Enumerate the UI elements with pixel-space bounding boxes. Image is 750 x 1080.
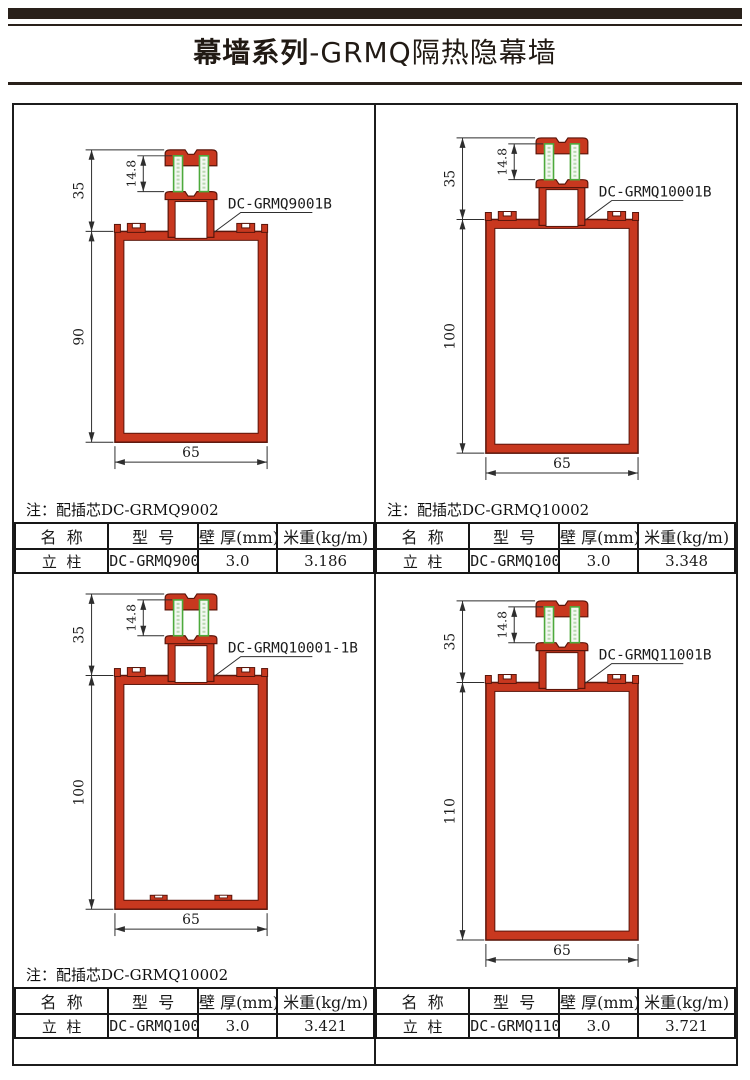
profile-drawing-dc-grmq11001: 3511014.865DC-GRMQ11001B	[375, 570, 736, 965]
col-meter-weight: 米重(kg/m)	[638, 523, 735, 549]
col-model: 型 号	[108, 988, 198, 1014]
col-meter-weight: 米重(kg/m)	[277, 523, 374, 549]
ear-notch-right	[613, 212, 621, 216]
profile-drawing-dc-grmq9001: 359014.865DC-GRMQ9001B	[14, 105, 375, 500]
dim-body-height: 100	[443, 323, 459, 350]
thermal-strip	[570, 607, 579, 643]
ear-notch-left	[132, 668, 140, 672]
ear-notch-right	[242, 668, 250, 672]
top-black-bar	[8, 8, 742, 19]
profile-model-label: DC-GRMQ9001B	[228, 197, 332, 213]
thermal-strip	[199, 156, 208, 192]
cell-name: 立 柱	[15, 1014, 108, 1038]
thermal-lower-piece	[536, 180, 588, 188]
cell-wall-thickness: 3.0	[198, 1014, 277, 1038]
ear-lip-right	[633, 676, 639, 684]
dim-arrow	[89, 594, 95, 604]
title-underline-rule	[8, 82, 742, 85]
col-model: 型 号	[469, 523, 559, 549]
dim-top-height: 35	[443, 633, 459, 651]
ear-lip-right	[262, 224, 268, 232]
body-cavity	[124, 240, 258, 433]
dim-arrow	[460, 443, 466, 453]
cell-meter-weight: 3.721	[638, 1014, 735, 1038]
ear-lip-left	[485, 212, 491, 220]
dim-arrow	[140, 600, 146, 610]
page-title: 幕墙系列-GRMQ隔热隐幕墙	[0, 31, 750, 71]
dim-strip-height: 14.8	[494, 611, 509, 639]
col-name: 名 称	[15, 988, 108, 1014]
dim-arrow	[460, 210, 466, 220]
quadrant-bottom-left: 3510014.865DC-GRMQ10001-1B 注：配插芯DC-GRMQ1…	[14, 570, 375, 1064]
col-meter-weight: 米重(kg/m)	[277, 988, 374, 1014]
dim-width: 65	[553, 943, 571, 959]
profile-model-label: DC-GRMQ10001-1B	[228, 641, 358, 657]
dim-width: 65	[182, 445, 200, 461]
dim-arrow	[257, 926, 267, 932]
dim-arrow	[89, 666, 95, 676]
thermal-strip	[174, 156, 183, 192]
catalog-page: { "header": { "series": "幕墙系列", "product…	[0, 0, 750, 1080]
dim-arrow	[628, 957, 638, 963]
spec-data-row: 立 柱 DC-GRMQ10001-1 3.0 3.421	[15, 1014, 374, 1038]
ear-lip-left	[485, 676, 491, 684]
col-name: 名 称	[376, 523, 469, 549]
insert-core-note	[375, 965, 736, 987]
neck-cavity	[175, 202, 207, 239]
cell-model: DC-GRMQ11001	[469, 1014, 559, 1038]
title-series: 幕墙系列	[193, 36, 309, 69]
cell-name: 立 柱	[376, 1014, 469, 1038]
quadrant-top-left: 359014.865DC-GRMQ9001B 注：配插芯DC-GRMQ9002 …	[14, 105, 375, 570]
ear-notch-left	[503, 212, 511, 216]
insert-core-note: 注：配插芯DC-GRMQ9002	[14, 500, 375, 522]
col-wall-thickness: 壁 厚(mm)	[198, 988, 277, 1014]
col-name: 名 称	[376, 988, 469, 1014]
dim-top-height: 35	[72, 182, 88, 200]
dim-top-height: 35	[72, 626, 88, 644]
bottom-boss-notch-right	[219, 895, 227, 898]
cell-wall-thickness: 3.0	[559, 1014, 638, 1038]
ear-lip-right	[262, 669, 268, 677]
dim-arrow	[511, 633, 517, 643]
thermal-strip	[174, 600, 183, 636]
dim-arrow	[460, 673, 466, 683]
body-cavity	[495, 691, 629, 931]
neck-cavity	[546, 653, 578, 690]
profile-model-label: DC-GRMQ10001B	[599, 185, 712, 201]
neck-cavity	[175, 646, 207, 683]
spec-header-row: 名 称 型 号 壁 厚(mm) 米重(kg/m)	[15, 523, 374, 549]
profile-drawing-dc-grmq10001: 3510014.865DC-GRMQ10001B	[375, 105, 736, 500]
content-frame: 359014.865DC-GRMQ9001B 注：配插芯DC-GRMQ9002 …	[12, 103, 738, 1066]
bottom-boss-notch-left	[155, 895, 163, 898]
title-product: -GRMQ隔热隐幕墙	[309, 36, 556, 69]
top-thin-rule	[8, 24, 742, 26]
col-model: 型 号	[469, 988, 559, 1014]
thermal-strip	[570, 144, 579, 180]
body-cavity	[495, 228, 629, 444]
profile-model-label: DC-GRMQ11001B	[599, 648, 712, 664]
dim-arrow	[140, 626, 146, 636]
dim-arrow	[511, 170, 517, 180]
dim-arrow	[486, 470, 496, 476]
profile-drawing-dc-grmq10001-1: 3510014.865DC-GRMQ10001-1B	[14, 570, 375, 965]
thermal-strip	[199, 600, 208, 636]
ear-notch-right	[613, 675, 621, 679]
dim-arrow	[140, 182, 146, 192]
ear-lip-right	[633, 212, 639, 220]
thermal-strip	[545, 607, 554, 643]
dim-arrow	[460, 601, 466, 611]
insert-core-note: 注：配插芯DC-GRMQ10002	[375, 500, 736, 522]
dim-body-height: 100	[72, 779, 88, 806]
spec-table: 名 称 型 号 壁 厚(mm) 米重(kg/m) 立 柱 DC-GRMQ1000…	[375, 522, 736, 574]
dim-arrow	[511, 607, 517, 617]
dim-arrow	[460, 219, 466, 229]
col-wall-thickness: 壁 厚(mm)	[559, 988, 638, 1014]
ear-lip-left	[114, 224, 120, 232]
dim-arrow	[115, 459, 125, 465]
thermal-lower-piece	[165, 192, 217, 200]
dim-arrow	[460, 138, 466, 148]
dim-strip-height: 14.8	[494, 148, 509, 176]
thermal-lower-piece	[165, 636, 217, 644]
dim-top-height: 35	[443, 170, 459, 188]
thermal-strip	[545, 144, 554, 180]
dim-body-height: 90	[72, 328, 88, 346]
dim-arrow	[89, 432, 95, 442]
col-wall-thickness: 壁 厚(mm)	[198, 523, 277, 549]
dim-arrow	[257, 459, 267, 465]
col-meter-weight: 米重(kg/m)	[638, 988, 735, 1014]
ear-notch-left	[132, 223, 140, 227]
dim-arrow	[89, 899, 95, 909]
spec-header-row: 名 称 型 号 壁 厚(mm) 米重(kg/m)	[15, 988, 374, 1014]
dim-strip-height: 14.8	[123, 604, 138, 632]
col-name: 名 称	[15, 523, 108, 549]
neck-cavity	[546, 190, 578, 227]
ear-notch-right	[242, 223, 250, 227]
cell-meter-weight: 3.421	[277, 1014, 374, 1038]
col-wall-thickness: 壁 厚(mm)	[559, 523, 638, 549]
thermal-lower-piece	[536, 643, 588, 651]
spec-data-row: 立 柱 DC-GRMQ11001 3.0 3.721	[376, 1014, 735, 1038]
dim-body-height: 110	[443, 798, 459, 825]
spec-header-row: 名 称 型 号 壁 厚(mm) 米重(kg/m)	[376, 988, 735, 1014]
dim-width: 65	[182, 912, 200, 928]
body-cavity	[124, 684, 258, 900]
dim-width: 65	[553, 456, 571, 472]
insert-core-note: 注：配插芯DC-GRMQ10002	[14, 965, 375, 987]
dim-arrow	[89, 221, 95, 231]
ear-lip-left	[114, 669, 120, 677]
dim-arrow	[511, 144, 517, 154]
spec-table: 名 称 型 号 壁 厚(mm) 米重(kg/m) 立 柱 DC-GRMQ1100…	[375, 987, 736, 1039]
dim-arrow	[486, 957, 496, 963]
spec-table: 名 称 型 号 壁 厚(mm) 米重(kg/m) 立 柱 DC-GRMQ1000…	[14, 987, 375, 1039]
spec-table: 名 称 型 号 壁 厚(mm) 米重(kg/m) 立 柱 DC-GRMQ9001…	[14, 522, 375, 574]
dim-arrow	[115, 926, 125, 932]
quadrant-bottom-right: 3511014.865DC-GRMQ11001B 名 称 型 号 壁 厚(mm)…	[375, 570, 736, 1064]
dim-arrow	[460, 682, 466, 692]
dim-arrow	[140, 156, 146, 166]
spec-header-row: 名 称 型 号 壁 厚(mm) 米重(kg/m)	[376, 523, 735, 549]
dim-strip-height: 14.8	[123, 160, 138, 188]
dim-arrow	[89, 676, 95, 686]
cell-model: DC-GRMQ10001-1	[108, 1014, 198, 1038]
ear-notch-left	[503, 675, 511, 679]
dim-arrow	[89, 150, 95, 160]
col-model: 型 号	[108, 523, 198, 549]
dim-arrow	[89, 231, 95, 241]
quadrant-top-right: 3510014.865DC-GRMQ10001B 注：配插芯DC-GRMQ100…	[375, 105, 736, 570]
dim-arrow	[628, 470, 638, 476]
dim-arrow	[460, 930, 466, 940]
